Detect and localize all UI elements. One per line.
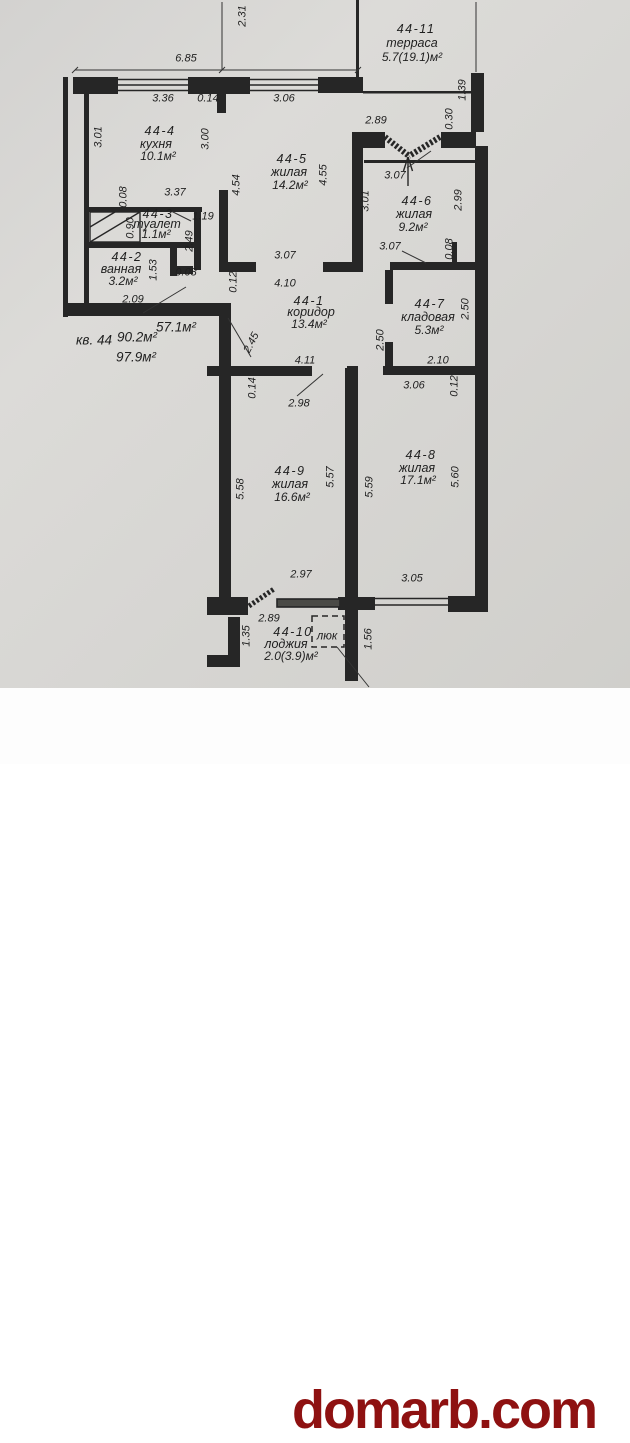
dimension-label: 2.97	[290, 570, 311, 581]
dimension-label: 1.35	[242, 625, 253, 646]
watermark-band: domarb.com	[0, 688, 630, 764]
room-area-label: 1.1м²	[142, 228, 171, 240]
dimension-label: 0.08	[445, 238, 456, 259]
dimension-label: 0.30	[445, 108, 456, 129]
room-name-label: жилая	[396, 208, 432, 221]
dimension-label: 0.14	[197, 94, 218, 105]
dimension-label: 2.31	[238, 5, 249, 26]
dimension-label: 1.19	[192, 212, 213, 223]
room-area-label: 9.2м²	[399, 221, 428, 233]
apartment-summary-label: 57.1м²	[156, 320, 196, 334]
dimension-label: 3.01	[361, 190, 372, 211]
watermark-text: domarb.com	[292, 1378, 596, 1443]
room-name-label: жилая	[272, 478, 308, 491]
dimension-label: 1.53	[149, 259, 160, 280]
dimension-label: 3.06	[403, 381, 424, 392]
dimension-label: 4.54	[232, 174, 243, 195]
dimension-label: 5.60	[451, 466, 462, 487]
dimension-label: 3.05	[401, 574, 422, 585]
room-area-label: 17.1м²	[400, 474, 436, 486]
dimension-label: 3.36	[152, 94, 173, 105]
room-id-label: 44-9	[274, 465, 305, 478]
dimension-label: 5.57	[326, 466, 337, 487]
room-id-label: 44-8	[405, 449, 436, 462]
dimension-label: 2.89	[258, 614, 279, 625]
dimension-label: 0.12	[450, 375, 461, 396]
dimension-label: 2.45	[242, 331, 262, 355]
dimension-label: 0.14	[248, 377, 259, 398]
room-area-label: 5.3м²	[415, 324, 444, 336]
dimension-label: 5.58	[236, 478, 247, 499]
room-id-label: 44-6	[401, 195, 432, 208]
dimension-label: 3.37	[164, 188, 185, 199]
plan-text-labels: 44-11терраса5.7(19.1)м²2.316.853.360.143…	[0, 0, 630, 690]
apartment-summary-label: 97.9м²	[116, 350, 156, 364]
room-area-label: 16.6м²	[274, 491, 310, 503]
dimension-label: 5.59	[365, 476, 376, 497]
dimension-label: 2.50	[461, 298, 472, 319]
room-id-label: 44-7	[414, 298, 445, 311]
dimension-label: 2.99	[454, 189, 465, 210]
dimension-label: 4.11	[295, 356, 316, 367]
room-area-label: 2.0(3.9)м²	[264, 650, 318, 662]
scanned-floor-plan-paper: 44-11терраса5.7(19.1)м²2.316.853.360.143…	[0, 0, 630, 764]
dimension-label: 2.49	[185, 230, 196, 251]
apartment-summary-label: 90.2м²	[117, 330, 157, 344]
room-id-label: 44-4	[144, 125, 175, 138]
dimension-label: 0.08	[175, 268, 196, 279]
apartment-summary-label: кв. 44	[76, 333, 112, 347]
room-area-label: 3.2м²	[109, 275, 138, 287]
room-id-label: 44-11	[397, 23, 436, 36]
dimension-label: 2.50	[376, 329, 387, 350]
dimension-label: 4.10	[274, 279, 295, 290]
dimension-label: 1.39	[458, 79, 469, 100]
room-name-label: терраса	[386, 37, 437, 50]
hatch-label: люк	[317, 631, 338, 643]
dimension-label: 1.56	[364, 628, 375, 649]
dimension-label: 2.98	[288, 399, 309, 410]
dimension-label: 6.85	[175, 54, 196, 65]
dimension-label: 0.90	[126, 217, 137, 238]
room-area-label: 14.2м²	[272, 179, 308, 191]
dimension-label: 3.00	[201, 128, 212, 149]
dimension-label: 3.07	[379, 242, 400, 253]
dimension-label: 2.89	[365, 116, 386, 127]
dimension-label: 3.06	[273, 94, 294, 105]
dimension-label: 4.55	[319, 164, 330, 185]
room-area-label: 10.1м²	[140, 150, 176, 162]
dimension-label: 2.10	[427, 356, 448, 367]
dimension-label: 3.07	[384, 171, 405, 182]
room-id-label: 44-5	[276, 153, 307, 166]
dimension-label: 0.12	[229, 271, 240, 292]
dimension-label: 0.08	[119, 186, 130, 207]
dimension-label: 2.09	[122, 295, 143, 306]
room-area-label: 5.7(19.1)м²	[382, 51, 442, 63]
room-area-label: 13.4м²	[291, 318, 327, 330]
dimension-label: 3.01	[94, 126, 105, 147]
dimension-label: 3.07	[274, 251, 295, 262]
room-name-label: жилая	[271, 166, 307, 179]
room-name-label: кладовая	[401, 311, 455, 324]
